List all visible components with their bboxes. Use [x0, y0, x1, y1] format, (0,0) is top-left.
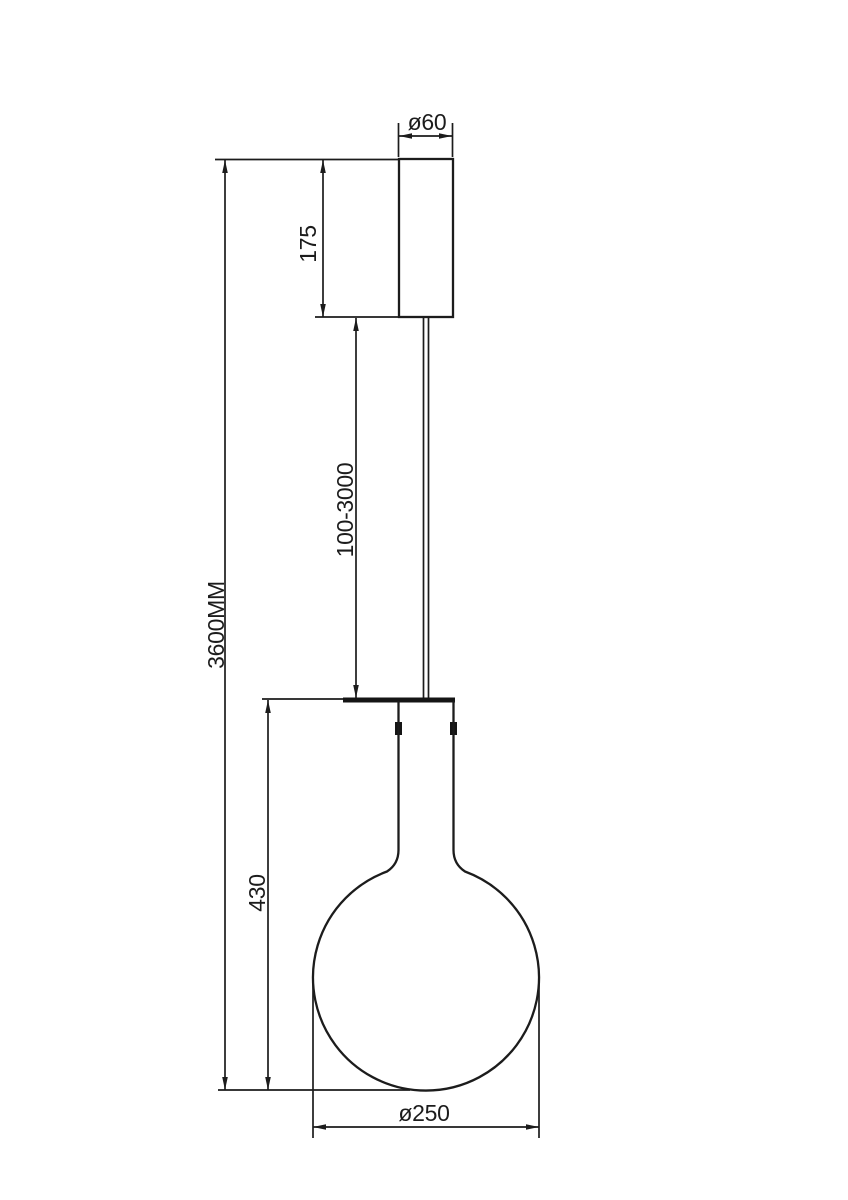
canopy-outline	[399, 159, 453, 317]
arrowhead-icon	[222, 1077, 228, 1090]
dimension-label-canopy-height: 175	[295, 225, 321, 262]
arrowhead-icon	[526, 1124, 539, 1130]
dimension-label-canopy-diameter: ø60	[408, 109, 447, 135]
drawing-page: ø60 175 100-3000 3600MM	[0, 0, 848, 1200]
arrowhead-icon	[320, 160, 326, 173]
suspension-cable	[424, 318, 429, 698]
arrowhead-icon	[265, 700, 271, 713]
arrowhead-icon	[313, 1124, 326, 1130]
dimension-label-globe-assembly-height: 430	[244, 874, 270, 911]
dimension-canopy-height: 175	[295, 160, 399, 317]
arrowhead-icon	[320, 304, 326, 317]
glass-globe-outline	[313, 701, 539, 1091]
dimension-label-globe-diameter: ø250	[398, 1100, 449, 1126]
dimension-label-cable-length: 100-3000	[332, 463, 358, 558]
dimension-globe-assembly-height: 430	[244, 699, 343, 1090]
dimension-overall-height: 3600MM	[203, 160, 410, 1091]
pendant-lamp-technical-drawing: ø60 175 100-3000 3600MM	[0, 0, 848, 1200]
arrowhead-icon	[353, 318, 359, 331]
fixture	[313, 159, 539, 1091]
dimension-cable-length: 100-3000	[332, 318, 359, 698]
arrowhead-icon	[265, 1077, 271, 1090]
dimension-label-overall-height: 3600MM	[203, 581, 229, 669]
arrowhead-icon	[222, 160, 228, 173]
arrowhead-icon	[353, 685, 359, 698]
dimension-canopy-diameter: ø60	[399, 109, 453, 157]
